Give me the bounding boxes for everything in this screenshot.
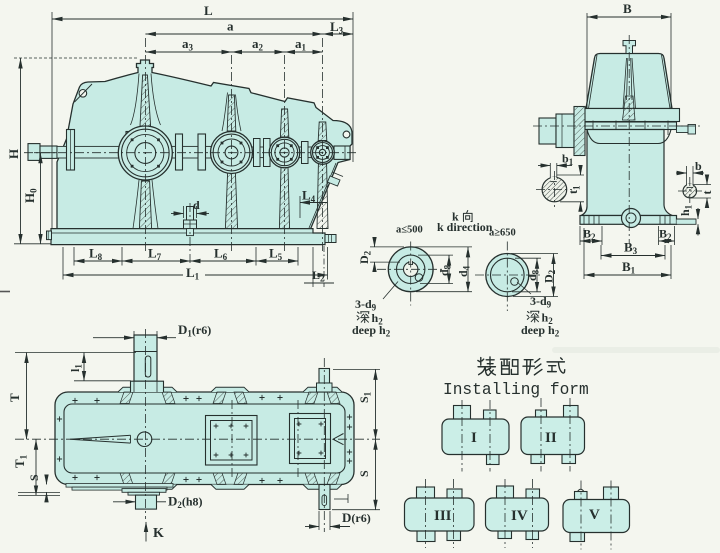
svg-text:t: t (700, 191, 714, 195)
svg-text:D(r6): D(r6) (342, 510, 371, 525)
svg-text:S: S (27, 474, 41, 481)
svg-text:b: b (695, 159, 702, 173)
svg-text:S: S (357, 470, 371, 477)
svg-text:B: B (623, 1, 632, 16)
svg-text:L: L (204, 3, 213, 18)
svg-text:II: II (545, 430, 557, 446)
svg-text:H: H (6, 149, 21, 159)
svg-text:T: T (7, 393, 22, 402)
svg-text:a≥650: a≥650 (489, 228, 516, 239)
svg-text:a: a (227, 19, 234, 34)
svg-text:Installing form: Installing form (443, 381, 589, 399)
svg-text:IV: IV (511, 508, 528, 524)
svg-text:III: III (434, 508, 452, 524)
svg-text:d: d (193, 198, 200, 212)
svg-text:deep h2: deep h2 (352, 323, 391, 339)
svg-text:D1(r6): D1(r6) (178, 322, 211, 339)
svg-text:I: I (471, 430, 477, 446)
svg-text:k direction: k direction (437, 220, 493, 234)
svg-text:V: V (589, 507, 600, 523)
svg-text:K: K (153, 526, 164, 541)
svg-text:deep h2: deep h2 (521, 323, 560, 339)
svg-text:a≤500: a≤500 (396, 225, 423, 236)
svg-text:D2(h8): D2(h8) (168, 494, 203, 511)
